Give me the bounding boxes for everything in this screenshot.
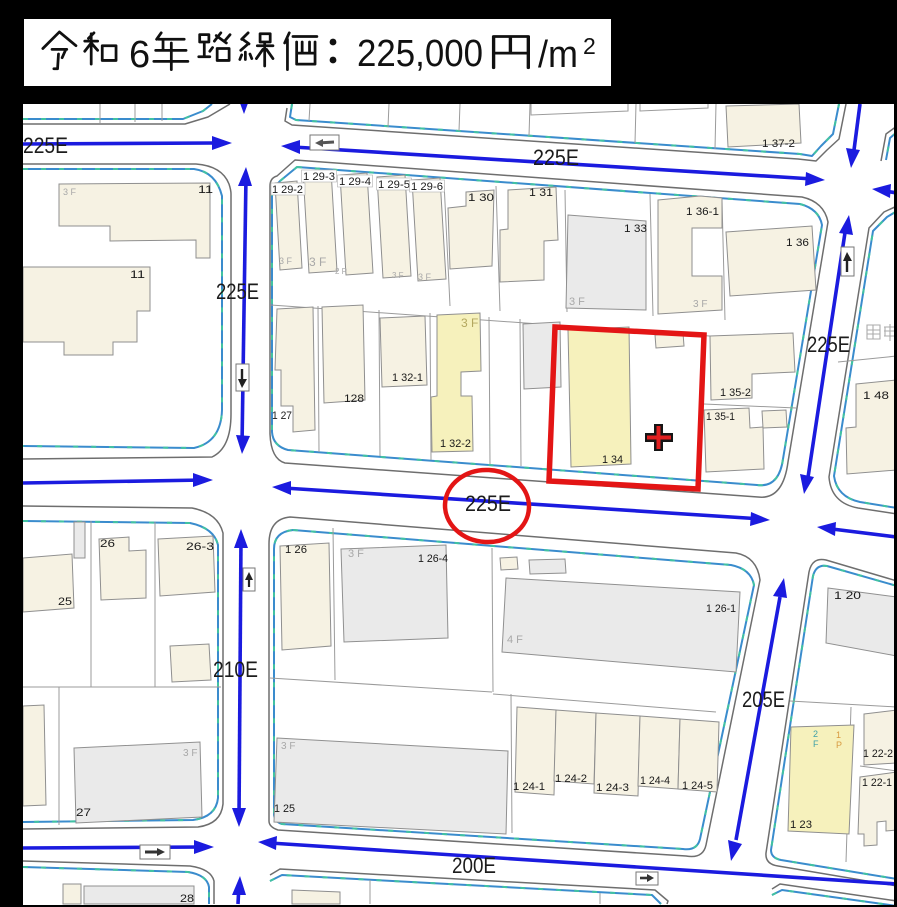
svg-text:2 P: 2 P — [335, 267, 347, 276]
svg-text:1 36: 1 36 — [786, 237, 809, 249]
svg-text:3 F: 3 F — [418, 272, 432, 282]
svg-text:1 23: 1 23 — [790, 819, 812, 831]
svg-text:3 F: 3 F — [281, 741, 295, 752]
svg-text:1 20: 1 20 — [834, 590, 861, 602]
svg-text:1 48: 1 48 — [863, 390, 889, 402]
svg-text:1 30: 1 30 — [468, 192, 494, 204]
svg-text:1 29-4: 1 29-4 — [339, 176, 371, 188]
svg-text:/m: /m — [538, 34, 578, 76]
svg-text:27: 27 — [76, 807, 91, 819]
svg-text:1 24-2: 1 24-2 — [555, 773, 587, 785]
svg-text:1 35-2: 1 35-2 — [720, 387, 751, 399]
svg-text:P: P — [836, 740, 842, 750]
svg-text:1 31: 1 31 — [529, 187, 553, 199]
svg-text:3 F: 3 F — [569, 296, 585, 308]
svg-text:1 29-2: 1 29-2 — [272, 184, 303, 196]
svg-text:1 32-1: 1 32-1 — [392, 372, 423, 384]
svg-text:1 35-1: 1 35-1 — [706, 411, 735, 423]
svg-text:1 37-2: 1 37-2 — [762, 138, 795, 150]
svg-text:3 F: 3 F — [693, 299, 707, 310]
svg-text:1 24-5: 1 24-5 — [682, 780, 713, 792]
svg-text:2: 2 — [813, 729, 818, 739]
svg-text:200E: 200E — [452, 853, 496, 878]
svg-text:11: 11 — [130, 269, 145, 281]
svg-text:6: 6 — [129, 34, 150, 76]
svg-text:11: 11 — [198, 184, 213, 196]
svg-text:1 24-3: 1 24-3 — [596, 782, 629, 794]
svg-text:225E: 225E — [533, 145, 579, 170]
svg-text:26-3: 26-3 — [186, 541, 214, 553]
svg-text:1 26-1: 1 26-1 — [706, 603, 736, 615]
svg-text:1 26-4: 1 26-4 — [418, 553, 448, 565]
svg-text:3 F: 3 F — [348, 548, 364, 560]
svg-text:210E: 210E — [213, 657, 258, 682]
svg-text:1: 1 — [836, 730, 841, 740]
svg-text:3 F: 3 F — [309, 255, 326, 269]
svg-text:26: 26 — [100, 538, 115, 550]
svg-text:1 27: 1 27 — [272, 410, 292, 422]
svg-text:2: 2 — [583, 33, 596, 59]
svg-text:28: 28 — [180, 893, 194, 905]
svg-text:1 29-5: 1 29-5 — [378, 179, 410, 191]
svg-text:205E: 205E — [742, 687, 785, 712]
svg-text:1 22-1: 1 22-1 — [862, 777, 892, 789]
svg-text:225,000: 225,000 — [357, 33, 483, 75]
svg-text:1 24-4: 1 24-4 — [640, 775, 670, 787]
svg-text:1 22-2: 1 22-2 — [863, 748, 893, 760]
svg-text:225E: 225E — [807, 332, 850, 357]
svg-text:225E: 225E — [23, 133, 68, 158]
svg-text:128: 128 — [344, 393, 364, 405]
svg-text:3 F: 3 F — [392, 271, 404, 280]
svg-text:1 24-1: 1 24-1 — [513, 781, 545, 793]
svg-text:1 34: 1 34 — [602, 454, 623, 466]
svg-text:1 36-1: 1 36-1 — [686, 206, 719, 218]
svg-text:F: F — [813, 739, 819, 749]
svg-text:1 25: 1 25 — [274, 803, 295, 815]
svg-text:25: 25 — [58, 596, 72, 608]
svg-text:3 F: 3 F — [461, 316, 478, 330]
svg-text:3 F: 3 F — [183, 748, 197, 759]
svg-text:1 26: 1 26 — [285, 544, 307, 556]
svg-text:1 33: 1 33 — [624, 223, 647, 235]
svg-text:1 29-6: 1 29-6 — [411, 181, 443, 193]
svg-text:1 32-2: 1 32-2 — [440, 438, 471, 450]
svg-text:3 F: 3 F — [63, 187, 77, 197]
svg-text:4 F: 4 F — [507, 634, 523, 646]
svg-text:1 29-3: 1 29-3 — [303, 171, 335, 183]
svg-text:225E: 225E — [465, 491, 511, 516]
svg-text:225E: 225E — [216, 279, 259, 304]
svg-text:3 F: 3 F — [279, 256, 293, 266]
